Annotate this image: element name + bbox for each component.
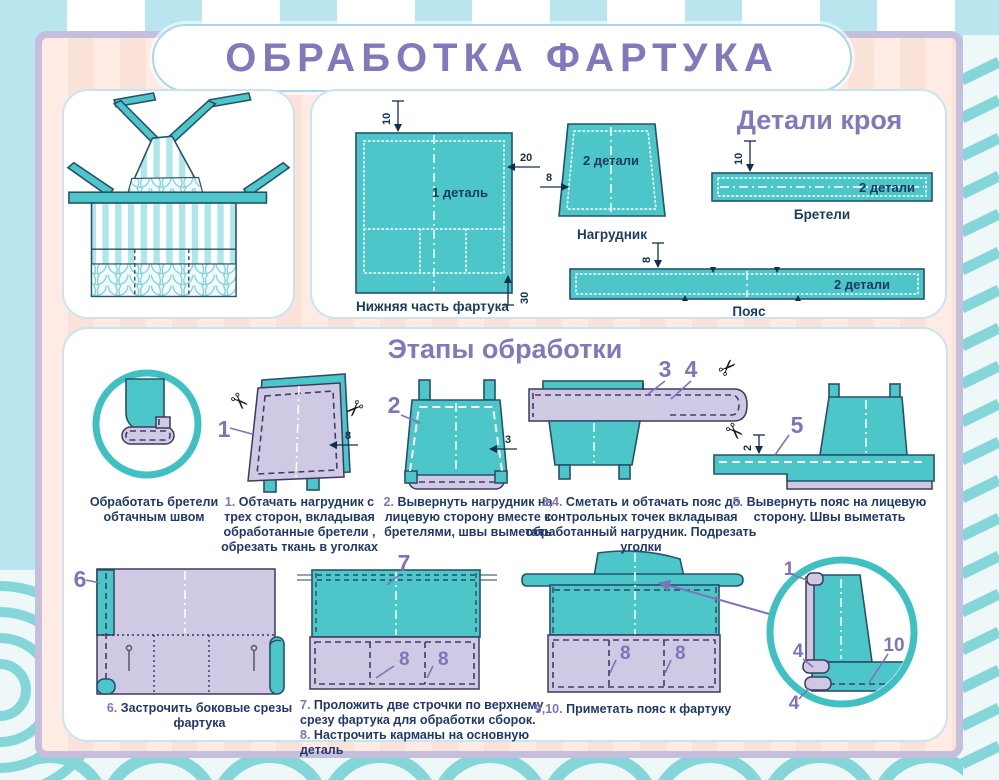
- caption-number: 5.: [733, 495, 743, 509]
- pocket-marker: 8: [399, 649, 410, 670]
- caption-text: Приметать пояс к фартуку: [566, 702, 731, 716]
- step1-diagram: ✂ ✂ 1 8: [216, 371, 366, 499]
- caption-number: 3,4.: [542, 495, 563, 509]
- caption-number: 8.: [300, 728, 310, 742]
- dim-10: 10: [733, 141, 756, 171]
- svg-text:8: 8: [546, 172, 552, 184]
- cutting-panel: Детали кроя 10 20: [310, 89, 947, 319]
- svg-text:10: 10: [733, 153, 745, 165]
- svg-text:20: 20: [520, 152, 532, 164]
- poster-title: ОБРАБОТКА ФАРТУКА: [225, 36, 778, 81]
- scissors-icon: ✂: [224, 386, 255, 417]
- apron-belt: [69, 192, 267, 203]
- caption-number: 6.: [107, 701, 117, 715]
- svg-text:30: 30: [519, 292, 531, 304]
- part-caption: Бретели: [794, 207, 850, 222]
- qty-label: 1 деталь: [432, 185, 488, 200]
- intro-circle-diagram: [92, 369, 202, 479]
- step6-caption: 6. Застрочить боковые срезы фартука: [82, 701, 317, 731]
- svg-text:8: 8: [345, 430, 351, 442]
- pocket-marker: 8: [675, 643, 686, 664]
- svg-text:10: 10: [381, 113, 393, 125]
- detail-marker-4a: 4: [793, 641, 804, 662]
- step6-diagram: 6: [74, 553, 299, 701]
- stages-panel: Этапы обработки ✂ ✂ 1: [62, 327, 948, 742]
- part-caption: Нижняя часть фартука: [356, 299, 509, 314]
- step4-marker: 4: [685, 357, 698, 382]
- qty-label: 2 детали: [859, 180, 915, 195]
- apron-neck-straps: [114, 93, 251, 142]
- apron-skirt: [92, 203, 236, 296]
- caption-text: Вывернуть пояс на лицевую сторону. Швы в…: [747, 495, 927, 524]
- step6-marker: 6: [74, 566, 86, 592]
- right-pattern: [962, 35, 999, 780]
- poster: ОБРАБОТКА ФАРТУКА: [35, 31, 963, 758]
- caption-text: Настрочить карманы на основную деталь: [300, 728, 529, 757]
- svg-text:8: 8: [641, 257, 653, 263]
- caption-number: 1.: [225, 495, 235, 509]
- step8-caption-line: 8. Настрочить карманы на основную деталь: [300, 728, 558, 758]
- caption-text: Обтачать нагрудник с трех сторон, вклады…: [221, 495, 378, 554]
- step7-caption-line: 7. Проложить две строчки по верхнему сре…: [300, 698, 558, 728]
- step2-marker: 2: [388, 392, 401, 418]
- part-bib-diagram: 8 2 детали Нагрудник: [534, 117, 684, 257]
- step910-caption: 9,10. Приметать пояс к фартуку: [522, 702, 744, 717]
- qty-label: 2 детали: [834, 277, 890, 292]
- pocket-marker: 8: [620, 643, 631, 664]
- step5-diagram: 2 5: [709, 359, 949, 494]
- detail-circle-diagram: 1 4 4 10: [757, 547, 929, 719]
- step7-marker: 7: [398, 553, 411, 576]
- cutting-heading: Детали кроя: [712, 105, 927, 136]
- part-belt-diagram: 8 2 детали Пояс: [562, 239, 942, 319]
- step5-caption: 5. Вывернуть пояс на лицевую сторону. Шв…: [712, 495, 947, 525]
- poster-title-box: ОБРАБОТКА ФАРТУКА: [152, 24, 852, 92]
- detail-marker-1: 1: [784, 559, 795, 580]
- apron-illustration: [64, 91, 293, 317]
- part-straps-diagram: 10 2 детали Бретели: [702, 137, 942, 225]
- dim-2: 2: [742, 435, 765, 453]
- dim-10: 10: [381, 101, 404, 131]
- caption-text: Обработать бретели обтачным швом: [90, 495, 218, 524]
- step5-marker: 5: [791, 412, 804, 438]
- step3-marker: 3: [659, 357, 672, 382]
- svg-text:3: 3: [505, 434, 511, 446]
- apron-bib: [128, 136, 203, 193]
- dim-8: 8: [641, 243, 664, 267]
- detail-marker-4b: 4: [789, 693, 800, 714]
- step1-marker: 1: [218, 416, 231, 442]
- part-lower-diagram: 10 20 30 1 деталь Нижняя часть фартука: [342, 97, 552, 319]
- caption-number: 9,10.: [535, 702, 563, 716]
- caption-text: Проложить две строчки по верхнему срезу …: [300, 698, 543, 727]
- poster-stage: ОБРАБОТКА ФАРТУКА: [0, 0, 999, 780]
- detail-marker-10: 10: [883, 635, 904, 656]
- qty-label: 2 детали: [583, 153, 639, 168]
- caption-number: 2.: [384, 495, 394, 509]
- part-caption: Пояс: [732, 304, 766, 319]
- apron-panel: [62, 89, 295, 319]
- step78-diagram: 8 8 7: [297, 553, 512, 695]
- caption-text: Застрочить боковые срезы фартука: [121, 701, 292, 730]
- step78-caption: 7. Проложить две строчки по верхнему сре…: [300, 698, 558, 758]
- step2-diagram: 2 3: [386, 371, 521, 499]
- pocket-marker: 8: [438, 649, 449, 670]
- svg-text:2: 2: [742, 445, 754, 451]
- caption-number: 7.: [300, 698, 310, 712]
- step1-caption: 1. Обтачать нагрудник с трех сторон, вкл…: [212, 495, 387, 555]
